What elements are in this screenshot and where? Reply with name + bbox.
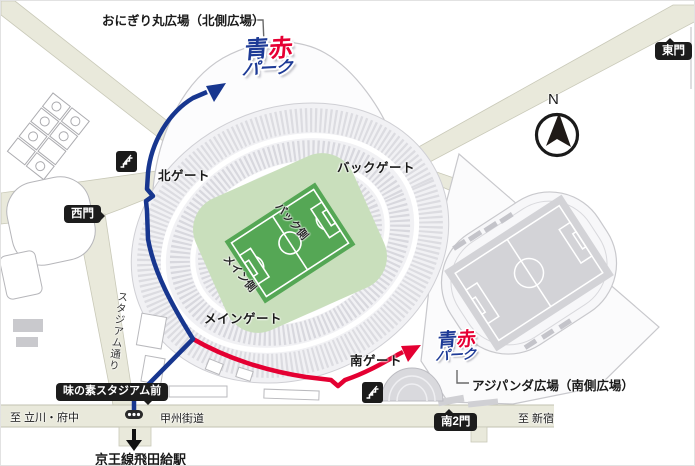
badge-pointer [142, 399, 154, 411]
north-plaza-label: おにぎり丸広場（北側広場） [102, 10, 265, 29]
compass-icon [537, 113, 578, 156]
south-gate-label: 南ゲート [350, 350, 402, 369]
bus-stop-badge-label: 味の素スタジアム前 [63, 385, 161, 397]
west-complex [1, 93, 101, 300]
south2-gate-badge-label: 南2門 [441, 416, 470, 428]
stadium-area-map: おにぎり丸広場（北側広場） バックゲート 北ゲート メインゲート 南ゲート バッ… [0, 0, 695, 466]
stairs-icon [116, 151, 137, 172]
back-gate-label: バックゲート [337, 157, 415, 176]
badge-pointer [99, 210, 111, 222]
koshu-kaido-label: 甲州街道 [160, 410, 204, 426]
west-gate-badge: 西門 [64, 205, 101, 223]
signal-icon [125, 410, 143, 419]
west-gate-badge-label: 西門 [71, 208, 94, 220]
compass-n-label: N [548, 91, 559, 108]
south-plaza-label: アジパンダ広場（南側広場） [472, 375, 634, 394]
logo-park: パーク [428, 348, 482, 363]
to-tachikawa-label: 至 立川・府中 [10, 409, 79, 425]
badge-pointer [664, 32, 676, 44]
aoaka-park-logo-north: 青赤 パーク [233, 37, 303, 78]
station-name-label: 京王線飛田給駅 [95, 449, 186, 466]
aoaka-park-logo-south: 青赤 パーク [428, 330, 484, 363]
east-gate-badge: 東門 [655, 42, 692, 60]
to-shinjuku-label: 至 新宿 [518, 410, 554, 426]
bus-stop-badge: 味の素スタジアム前 [56, 383, 168, 401]
east-gate-badge-label: 東門 [662, 45, 685, 57]
tennis-courts [7, 93, 89, 180]
north-gate-label: 北ゲート [158, 165, 210, 184]
main-gate-label: メインゲート [204, 308, 282, 327]
red-arrowhead [401, 345, 421, 362]
badge-pointer [443, 403, 455, 415]
south2-gate-badge: 南2門 [434, 413, 477, 431]
stairs-icon [362, 382, 383, 403]
logo-park: パーク [233, 59, 301, 78]
